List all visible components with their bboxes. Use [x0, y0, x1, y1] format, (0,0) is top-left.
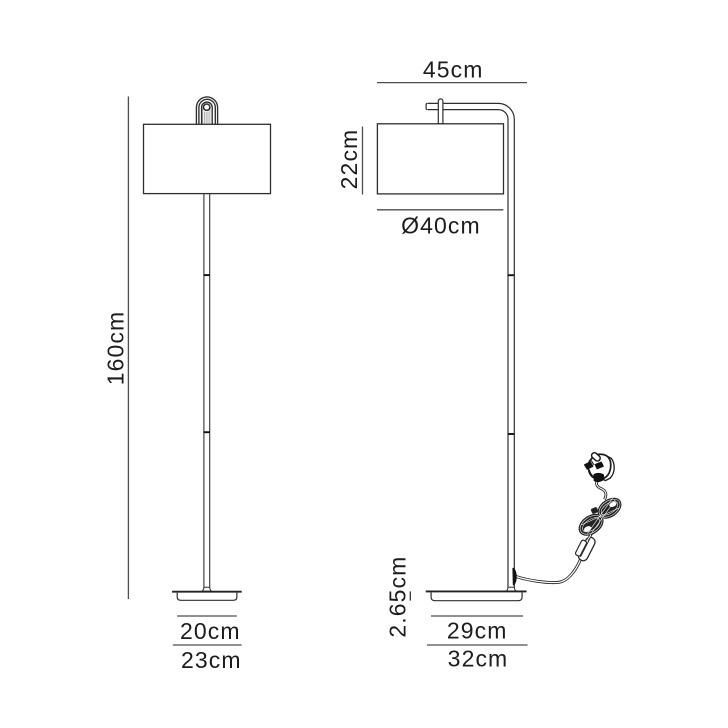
svg-text:Ø40cm: Ø40cm [401, 213, 481, 239]
svg-text:29cm: 29cm [447, 618, 508, 644]
svg-text:45cm: 45cm [423, 57, 484, 83]
svg-text:20cm: 20cm [180, 618, 241, 644]
svg-text:2.65cm: 2.65cm [384, 556, 410, 638]
svg-text:23cm: 23cm [181, 647, 242, 673]
svg-text:22cm: 22cm [336, 129, 362, 190]
svg-text:160cm: 160cm [103, 311, 129, 386]
svg-text:32cm: 32cm [448, 646, 509, 672]
